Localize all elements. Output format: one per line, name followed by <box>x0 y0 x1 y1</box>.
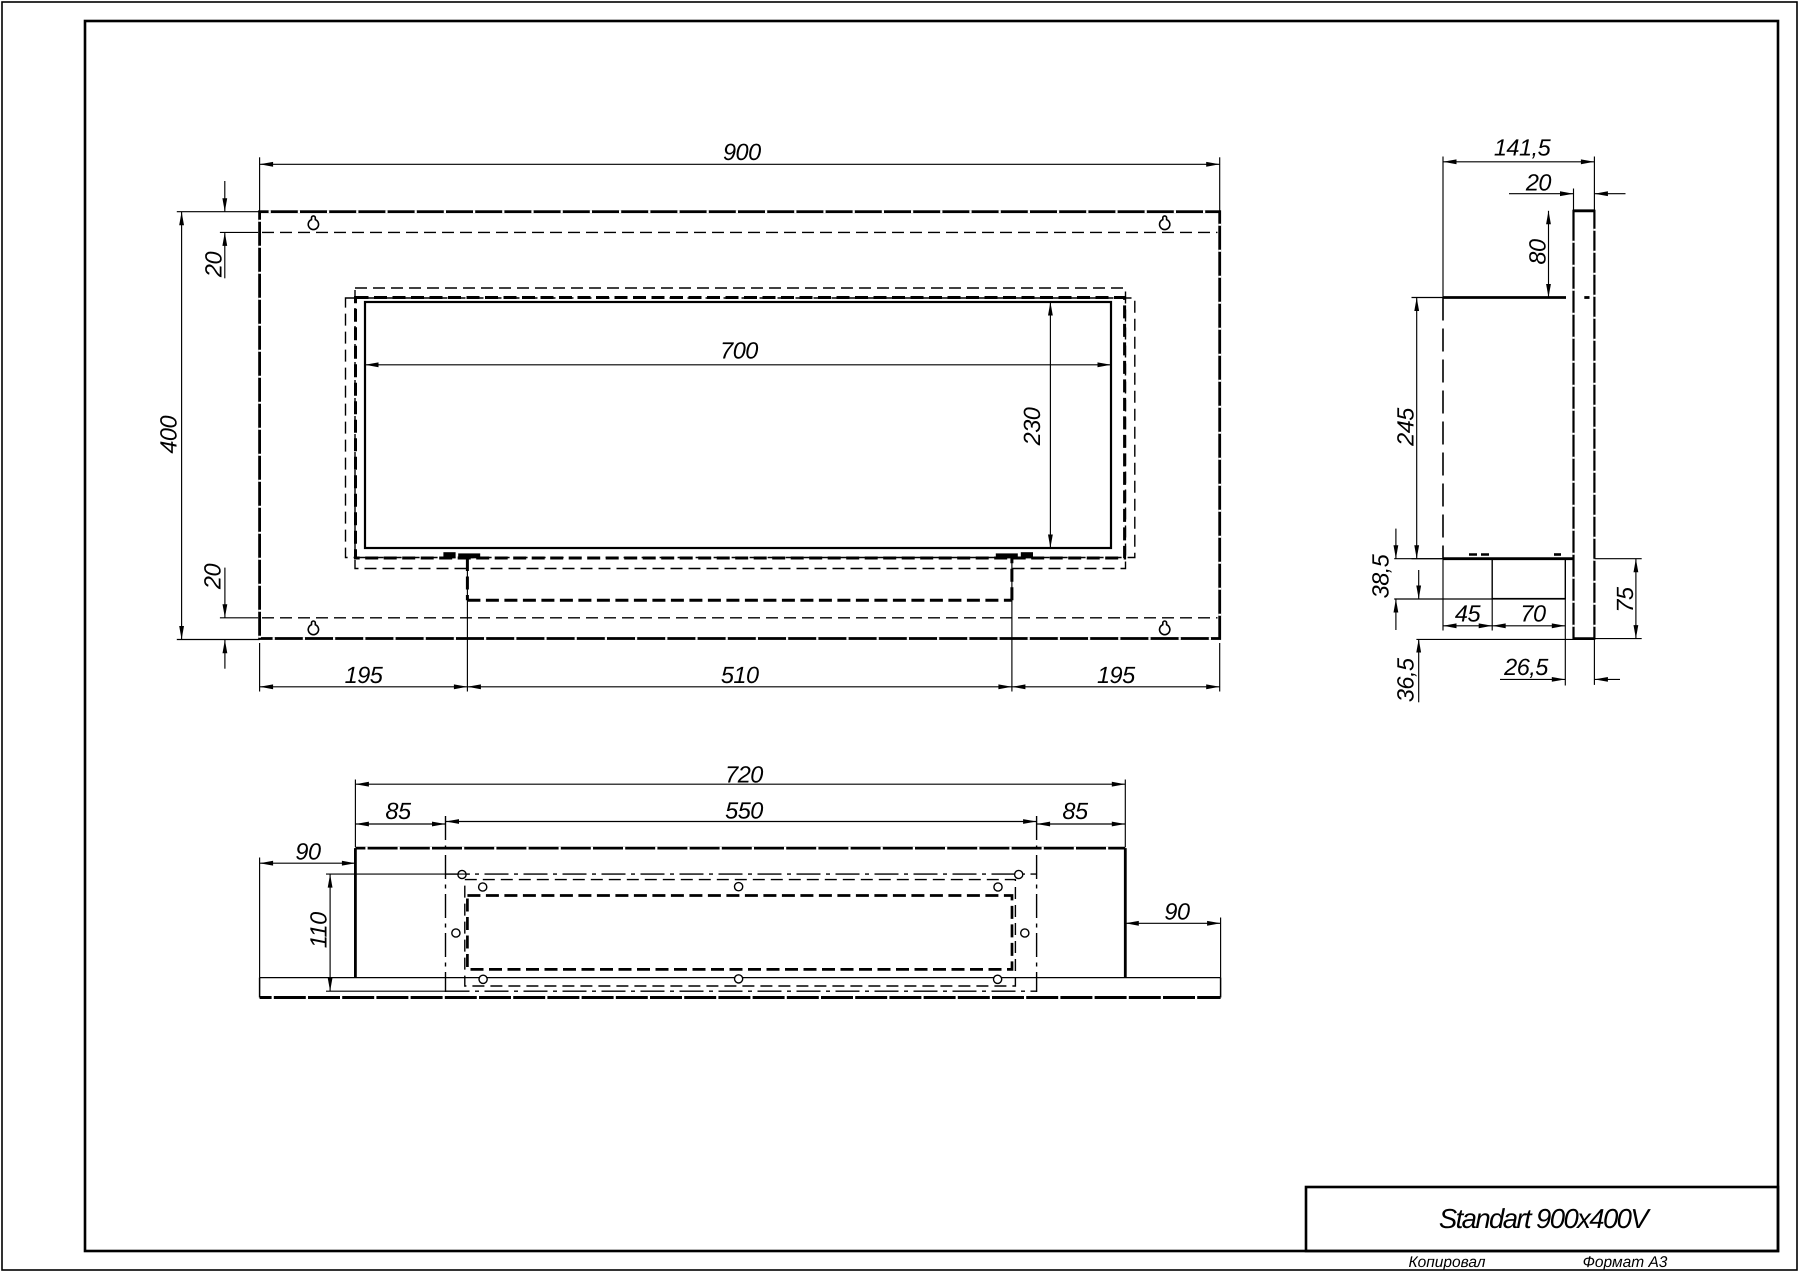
svg-text:85: 85 <box>385 798 412 824</box>
svg-text:195: 195 <box>1097 662 1136 688</box>
svg-text:230: 230 <box>1019 407 1045 446</box>
svg-text:110: 110 <box>306 912 332 948</box>
svg-text:70: 70 <box>1520 600 1546 626</box>
svg-text:900: 900 <box>723 139 761 165</box>
svg-text:75: 75 <box>1612 586 1638 613</box>
svg-text:85: 85 <box>1062 798 1089 824</box>
svg-text:Копировал: Копировал <box>1408 1254 1485 1271</box>
svg-text:141,5: 141,5 <box>1494 134 1552 160</box>
svg-text:36,5: 36,5 <box>1393 657 1419 702</box>
svg-text:195: 195 <box>345 662 384 688</box>
svg-text:510: 510 <box>721 662 759 688</box>
svg-text:90: 90 <box>1164 899 1190 925</box>
svg-text:80: 80 <box>1525 239 1551 265</box>
svg-text:Формат А3: Формат А3 <box>1583 1254 1668 1271</box>
svg-text:20: 20 <box>1525 169 1552 195</box>
svg-text:400: 400 <box>156 416 182 454</box>
svg-text:Standart 900x400V: Standart 900x400V <box>1439 1203 1652 1234</box>
svg-text:720: 720 <box>725 761 763 787</box>
svg-text:90: 90 <box>295 839 321 865</box>
svg-text:550: 550 <box>725 797 763 823</box>
svg-text:20: 20 <box>201 252 227 279</box>
svg-text:700: 700 <box>720 338 758 364</box>
svg-text:245: 245 <box>1393 407 1419 447</box>
svg-text:20: 20 <box>199 564 225 591</box>
svg-text:38,5: 38,5 <box>1367 553 1393 598</box>
svg-text:45: 45 <box>1455 600 1482 626</box>
svg-text:26,5: 26,5 <box>1503 654 1549 680</box>
